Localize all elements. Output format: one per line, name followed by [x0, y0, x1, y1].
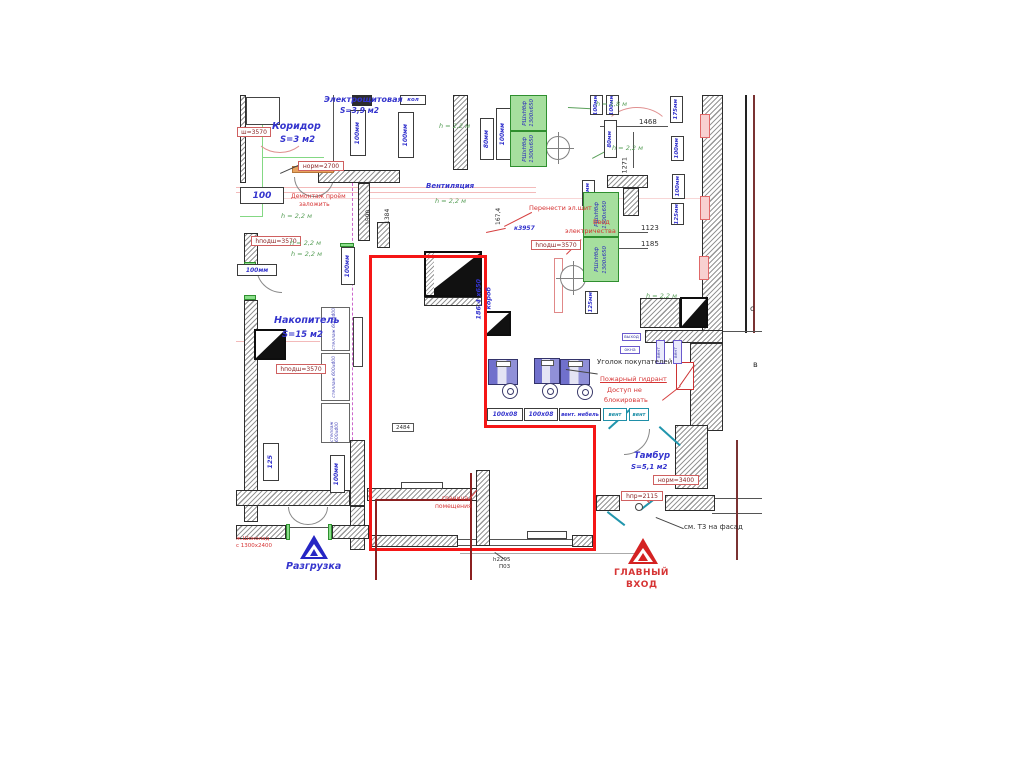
wall-hatched [453, 95, 468, 170]
lbl-norm2700-text: норм=2700 [303, 163, 339, 170]
lbl-sh3570: ш=3570 [237, 127, 271, 137]
pipe-100-4: 100мм [341, 247, 355, 285]
pipe-80-2: 80мм [604, 120, 617, 158]
wall-hatched [640, 298, 680, 328]
wiring-line-green [262, 157, 324, 158]
checkout-seat [542, 383, 558, 399]
premises-red-boundary [369, 255, 487, 258]
mic-vyhod-text: выход [624, 335, 639, 340]
premises-red-boundary [484, 425, 596, 428]
cash-4-text: вент [609, 412, 622, 418]
door-jamb [244, 295, 256, 300]
shelf-2-text: стеллаж 600х400 [333, 356, 338, 398]
cash-2-text: 100х08 [529, 411, 554, 418]
main-entrance-label2: ВХОД [626, 581, 657, 590]
boundary-note2: помещения [435, 504, 472, 510]
cash-2: 100х08 [524, 408, 558, 421]
mic-okna-text: окна [624, 348, 635, 353]
red-leader-line [662, 386, 681, 401]
pipe-125-4: 125мм [585, 291, 598, 314]
ground-line [460, 553, 650, 554]
lbl-norm3400-text: норм=3400 [658, 477, 694, 484]
pipe-80-1: 80мм [480, 118, 494, 160]
pipe-125-2: 125мм [671, 203, 684, 225]
main-entrance-triangle-icon [628, 538, 658, 564]
dim-1590: 1590 [366, 210, 372, 225]
triangle-core [310, 549, 318, 556]
gbox-4: РШхНбф1300х650 [583, 237, 619, 282]
h22-4: h = 2,2 м [439, 123, 470, 130]
pipe-125-2-text: 125мм [674, 204, 680, 224]
gbox-2-text2: 1300х650 [529, 135, 535, 163]
wall-hatched [350, 440, 365, 506]
pipe-175-text: 175мм [673, 99, 679, 119]
room-tambur-area: S=5,1 м2 [631, 464, 667, 471]
note-demontazh2: заложить [299, 202, 330, 208]
h22-7: h = 2,2 м [646, 293, 677, 300]
duct-size: 186,4 х650 [476, 279, 483, 320]
wall-hatched [572, 535, 593, 547]
room-corridor-area: S=3 м2 [280, 136, 315, 145]
shaft-hatch [426, 253, 434, 295]
h22-2: h = 2,2 м [290, 240, 321, 247]
door-jamb [328, 524, 332, 540]
gbox-1-text2: 1300х650 [529, 99, 535, 127]
triangle-core [638, 553, 648, 561]
gbox-1-text: РШхНбф [522, 101, 528, 126]
shelf-3-text: стеллаж 600х400 [331, 404, 341, 442]
pipe-kol: кол [400, 95, 426, 105]
lbl-norm2700: норм=2700 [298, 161, 344, 171]
leader-line [656, 517, 684, 529]
pipe-100-6: 100мм [671, 136, 684, 161]
checkout-seat [502, 383, 518, 399]
dim-p03: П03 [499, 565, 510, 571]
dim-1271: 1271 [622, 157, 629, 174]
pipe-80-1-text: 80мм [484, 130, 491, 148]
h22-1: h = 2,2 м [281, 213, 312, 220]
letter-c: с [750, 305, 754, 313]
lbl-hpr2115: hпр=2115 [621, 491, 663, 501]
lbl-2484-text: 2484 [396, 425, 410, 431]
wall-hatched [377, 222, 390, 248]
premises-red-boundary [369, 255, 372, 551]
note-demontazh: Демонтаж проём [291, 194, 346, 200]
shaft-triangle-icon [682, 299, 706, 326]
red-leader-line [486, 228, 506, 233]
page: { "colors": { "premises_boundary": "#f51… [0, 0, 1024, 768]
cash-1-text: 100х08 [493, 411, 518, 418]
wall-hatched [332, 525, 369, 539]
pipe-100-6-text: 100мм [674, 138, 680, 158]
h22-3: h = 2,2 м [291, 251, 322, 258]
hydrant-note2: Доступ не [607, 387, 642, 394]
main-entrance-label: ГЛАВНЫЙ [614, 569, 669, 578]
mic-okna: окна [620, 346, 640, 354]
checkout-seat [577, 384, 593, 400]
wall-hatched [623, 188, 639, 216]
boundary-note: граница [442, 496, 468, 502]
mic-vyhod: выход [622, 333, 641, 341]
pipe-100-5: 100мм [330, 455, 345, 493]
wall-hatched [476, 470, 490, 546]
pipe-100-1: 100мм [350, 110, 366, 156]
unloading-label: Разгрузка [286, 562, 341, 572]
floor-plan: 100100ммкол100мм100мм80мм100мм100мм100мм… [236, 95, 762, 590]
h22-5: h = 2,2 м [435, 198, 466, 205]
pipe-100-3: 100мм [496, 108, 511, 160]
pipe-100-7: 100мм [672, 174, 685, 199]
wall-hatched [424, 297, 482, 306]
cash-5: вент [629, 408, 649, 421]
door-leaf-teal [607, 511, 625, 526]
pipe-100-1-text: 100мм [355, 122, 362, 144]
gbox-2-text: РШхНбф [522, 137, 528, 162]
micv-2-text: вент [675, 347, 680, 358]
pipe-100-3-text: 100мм [500, 123, 507, 145]
shaft-triangle-icon [426, 253, 480, 295]
door-arc [308, 507, 328, 525]
vent-note: Вентиляция [426, 183, 474, 190]
unloading-triangle-icon [300, 535, 328, 559]
shelf-3: стеллаж 600х400 [321, 403, 350, 443]
room-electro: Электрощитовая [324, 96, 403, 104]
door-handle [635, 503, 643, 511]
dim-1123: 1123 [641, 225, 659, 232]
hydrant-note3: блокировать [604, 397, 648, 404]
shelf-2: стеллаж 600х400 [321, 353, 350, 401]
pipe-125-4-text: 125мм [588, 292, 594, 312]
note-vvod2: электричества [565, 228, 616, 235]
cash-5-text: вент [633, 412, 646, 418]
wall-hatched [690, 343, 723, 431]
lbl-hpodsh2: hподш=3570 [276, 364, 326, 374]
gbox-2: РШхНбф1300х650 [510, 131, 547, 167]
pipe-100-5-text: 100мм [334, 463, 341, 485]
hydrant-note: Пожарный гидрант [600, 376, 667, 383]
room-nakopitel-area: S=15 м2 [282, 331, 323, 340]
pipe-100-b: 100мм [237, 264, 277, 276]
lbl-2484: 2484 [392, 423, 414, 432]
axis-marker-icon [546, 136, 570, 160]
cash-3: вент. мебель [559, 408, 601, 421]
lbl-hpodsh2-text: hподш=3570 [280, 366, 321, 373]
shelf-1: стеллаж 600х400 [321, 307, 350, 351]
wall-vent-box [699, 256, 709, 280]
micv-2: вент [673, 340, 682, 364]
wall-vent-box [700, 196, 710, 220]
riser-line [753, 95, 755, 333]
pipe-100-b-text: 100мм [246, 267, 268, 274]
cash-1: 100х08 [487, 408, 523, 421]
pipe-100-a-text: 100 [253, 191, 272, 201]
gbox-4-text2: 1300х650 [602, 246, 608, 274]
cash-4: вент [603, 408, 627, 421]
boundary-extension-line [375, 499, 377, 580]
fixture-outline [527, 531, 567, 539]
letter-v: в [753, 361, 758, 369]
lbl-sh3570-text: ш=3570 [241, 129, 267, 136]
pipe-100-2: 100мм [398, 112, 414, 158]
dim-167-4: 167,4 [496, 208, 502, 225]
pipe-125-1-text: 125 [267, 455, 274, 469]
pipe-100-4-text: 100мм [345, 255, 352, 277]
gbox-4-text: РШхНбф [594, 247, 600, 272]
h18: h = 1,8 м [596, 101, 627, 108]
room-corridor: Коридор [272, 122, 321, 132]
dim-1384: 1384 [385, 209, 391, 224]
lbl-norm3400: норм=3400 [653, 475, 699, 485]
duct-size2: короб [486, 287, 493, 310]
premises-red-boundary [484, 255, 487, 427]
room-electro-area: S=3,9 м2 [340, 107, 379, 115]
premises-red-boundary [369, 548, 596, 551]
gbox-1: РШхНбф1300х650 [510, 95, 547, 131]
pipe-125-1: 125 [263, 443, 279, 481]
cash-3-text: вент. мебель [561, 412, 599, 418]
wall-hatched [665, 495, 715, 511]
door-arc [288, 507, 308, 525]
pipe-100-2-text: 100мм [403, 124, 410, 146]
thin-line [723, 331, 762, 332]
thin-line [333, 95, 334, 169]
ref-k3957: к3957 [514, 226, 535, 232]
riser-line [736, 440, 738, 560]
room-nakopitel: Накопитель [274, 316, 339, 326]
vent-shaft [680, 297, 708, 328]
fixture-outline [401, 482, 443, 489]
lbl-hpodsh3: hподш=3570 [531, 240, 581, 250]
checkout-counter [488, 359, 518, 385]
lbl-hpodsh3-text: hподш=3570 [535, 242, 576, 249]
pipe-100-7-text: 100мм [675, 176, 681, 196]
premises-red-boundary [593, 425, 596, 551]
dim-1468: 1468 [639, 119, 657, 126]
shaft-triangle-icon [486, 313, 509, 334]
wall-hatched [607, 175, 648, 188]
fixture-outline [353, 317, 363, 367]
lbl-hpr2115-text: hпр=2115 [626, 493, 658, 500]
wall-vent-box [700, 114, 710, 138]
wall-hatched [370, 535, 458, 547]
chocolate-note: ж.Шоколад [236, 537, 269, 543]
wiring-line-green [240, 216, 263, 217]
vent-shaft [484, 311, 511, 336]
wall-line [745, 95, 747, 333]
note-vvod: Ввод [593, 219, 610, 226]
h22-6: h = 2,2 м [612, 145, 643, 152]
chocolate-note2: с 1300х2400 [236, 544, 272, 550]
pipe-kol-text: кол [407, 97, 419, 103]
micv-1-text: вент [658, 347, 663, 358]
dim-h2295: h2295 [493, 558, 510, 564]
corner-label: Уголок покупателей [597, 359, 672, 366]
facade-note: см. Т3 на фасад [684, 524, 743, 531]
note-perenesti: Перенести эл.щит [529, 205, 592, 212]
checkout-counter [534, 358, 560, 384]
shaft-triangle-icon [256, 331, 284, 358]
pipe-100-a: 100 [240, 187, 284, 204]
boundary-extension-line [470, 473, 472, 580]
dim-1185: 1185 [641, 241, 659, 248]
door-jamb [286, 524, 290, 540]
room-tambur: Тамбур [634, 452, 670, 461]
pipe-175: 175мм [670, 96, 683, 123]
wall-hatched [596, 495, 620, 511]
